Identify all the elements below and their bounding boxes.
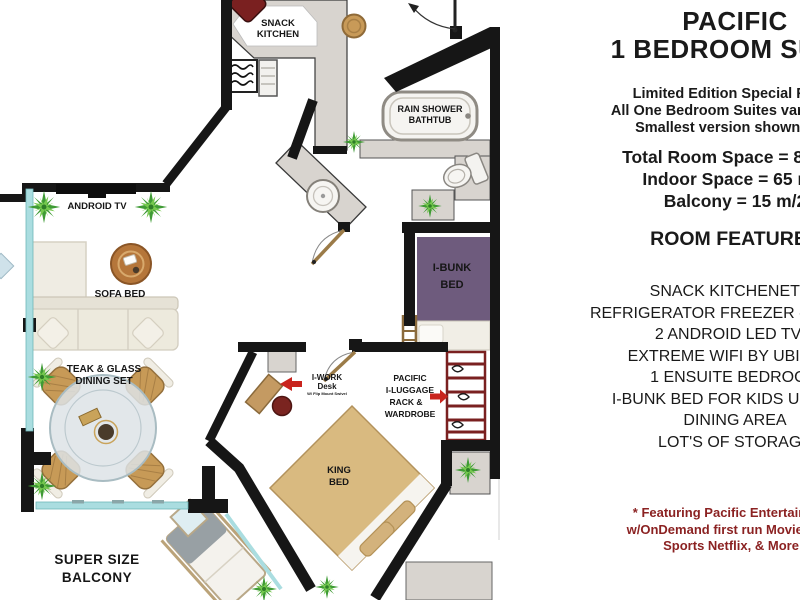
luggage-label2: I-LUGGAGE <box>386 385 434 395</box>
feature-item: LOT'S OF STORAGE <box>500 432 800 454</box>
feature-item: I-BUNK BED FOR KIDS UP TO 12 <box>500 389 800 411</box>
tub-drain <box>465 113 471 119</box>
feature-item: EXTREME WIFI BY UBIQUITI <box>500 346 800 368</box>
i-bunk-label: I-BUNK <box>433 262 472 274</box>
feature-item: 2 ANDROID LED TV'S <box>500 324 800 346</box>
luggage-label3: RACK & <box>389 397 422 407</box>
features-heading: ROOM FEATURES <box>500 228 800 251</box>
desk-arrow-icon <box>280 377 302 391</box>
subtitle-line1: Limited Edition Special Room <box>500 86 800 103</box>
dining-label2: DINING SET <box>75 376 132 387</box>
king-bed-label2: BED <box>329 477 349 488</box>
entry-door-leaf <box>454 0 457 28</box>
feature-item: REFRIGERATOR FREEZER - MINI BAR <box>500 303 800 325</box>
work-area <box>246 374 292 415</box>
suite-title-line2: 1 BEDROOM SUITE <box>500 34 800 65</box>
spec-total-space: Total Room Space = 80 m/2 <box>500 146 800 168</box>
dining-label: TEAK & GLASS <box>67 364 142 375</box>
entry-door-swing <box>412 6 455 29</box>
footnote-line2: w/OnDemand first run Movies, Live <box>500 522 800 539</box>
feature-item: SNACK KITCHENETTE <box>500 281 800 303</box>
window-wall <box>26 189 33 431</box>
bath-door-leaf <box>312 230 344 264</box>
feature-item: 1 ENSUITE BEDROOM <box>500 367 800 389</box>
king-bed-label: KING <box>327 465 351 476</box>
snack-kitchen-label2: KITCHEN <box>257 29 299 40</box>
page: { "panel": { "title1": "PACIFIC", "title… <box>0 0 800 600</box>
rain-shower-label: RAIN SHOWER <box>398 104 464 114</box>
luggage-label: PACIFIC <box>393 373 426 383</box>
info-panel: PACIFIC 1 BEDROOM SUITE Limited Edition … <box>500 0 800 600</box>
wardrobe <box>447 352 485 440</box>
east-wall <box>490 27 500 479</box>
i-work-label: I-WORK <box>312 373 342 382</box>
desk-shelf <box>268 350 296 372</box>
footnote-line3: Sports Netflix, & More ) <box>500 538 800 555</box>
android-tv-label: ANDROID TV <box>67 201 127 212</box>
table-bowl <box>98 424 114 440</box>
floor-plan: SNACK KITCHEN RAIN SHOWER BATHTUB ANDROI… <box>0 0 505 600</box>
mini-fridge <box>259 60 277 96</box>
i-bunk-label2: BED <box>440 279 463 291</box>
rain-shower-label2: BATHTUB <box>409 115 452 125</box>
subtitle-line3: Smallest version shown here <box>500 120 800 137</box>
feature-item: DINING AREA <box>500 410 800 432</box>
subtitle-line2: All One Bedroom Suites vary in size <box>500 103 800 120</box>
android-tv-icon <box>56 184 136 194</box>
spec-balcony: Balcony = 15 m/2 <box>500 190 800 212</box>
terrace-pad <box>406 562 492 600</box>
bunk-pillow <box>419 325 443 343</box>
balcony-label2: BALCONY <box>62 570 132 585</box>
plant-icon <box>315 575 338 598</box>
plant-icon <box>135 191 168 224</box>
balcony-label: SUPER SIZE <box>54 552 139 567</box>
snack-kitchen-label: SNACK <box>261 18 295 29</box>
spec-indoor-space: Indoor Space = 65 m/2 <box>500 168 800 190</box>
kitchen-stool <box>343 15 366 38</box>
bunk-nook <box>403 237 490 352</box>
bunk-north-wall <box>402 222 490 233</box>
decor-diamond <box>0 253 14 278</box>
i-work-note: W/ Flip Mount Swivel <box>307 391 347 396</box>
entry-wall <box>384 27 500 92</box>
suite-title-line1: PACIFIC <box>500 6 800 37</box>
luggage-label4: WARDROBE <box>385 409 436 419</box>
sofa-bed-mattress <box>30 242 86 300</box>
i-work-desk-label: Desk <box>317 382 337 391</box>
footnote-line1: * Featuring Pacific Entertainment <box>500 505 800 522</box>
kitchen-west-wall <box>221 0 232 110</box>
desk-chair <box>273 397 292 416</box>
sofa-bed-label: SOFA BED <box>95 289 146 300</box>
